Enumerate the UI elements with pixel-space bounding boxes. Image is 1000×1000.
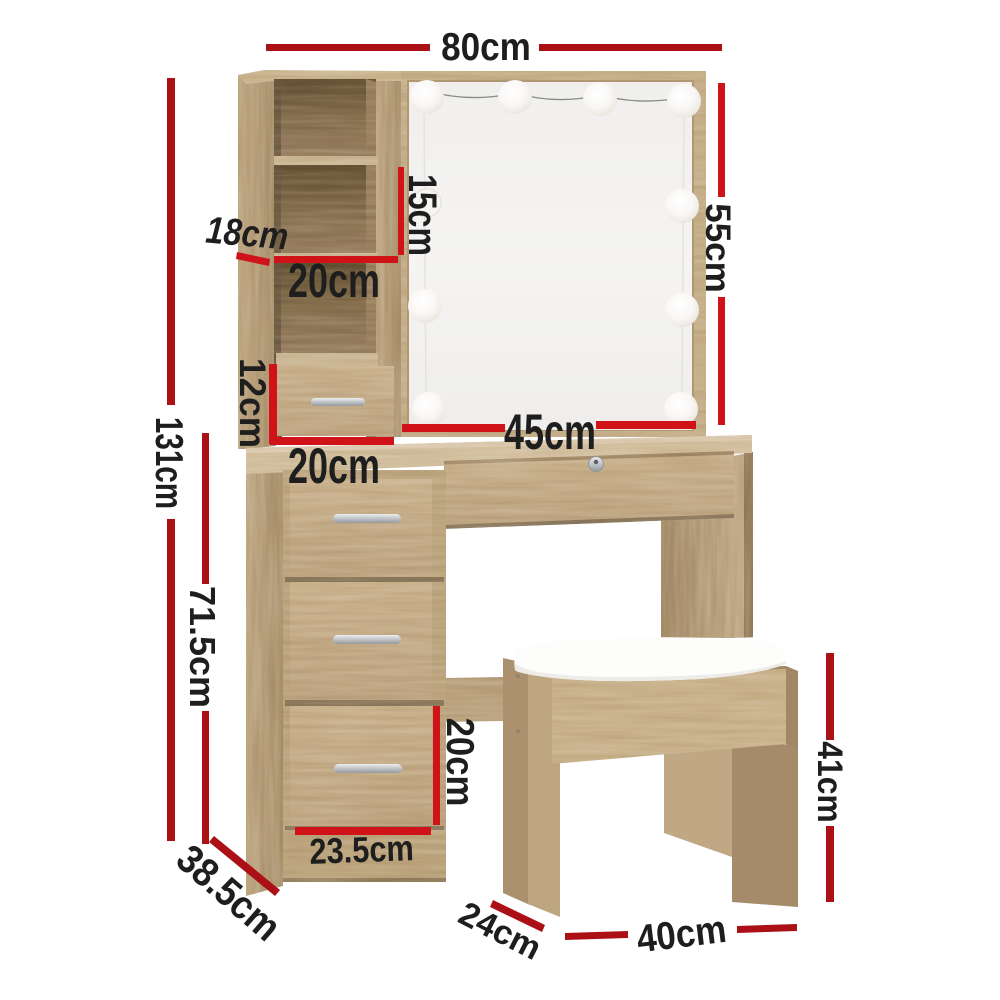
svg-text:12cm: 12cm: [232, 358, 274, 448]
svg-text:55cm: 55cm: [698, 203, 737, 293]
svg-text:131cm: 131cm: [147, 417, 190, 509]
svg-text:18cm: 18cm: [204, 209, 290, 258]
svg-text:20cm: 20cm: [439, 718, 482, 807]
svg-text:15cm: 15cm: [400, 174, 445, 256]
svg-text:20cm: 20cm: [288, 254, 380, 307]
svg-text:45cm: 45cm: [504, 405, 596, 460]
svg-text:23.5cm: 23.5cm: [309, 829, 415, 872]
svg-text:20cm: 20cm: [288, 439, 380, 494]
svg-text:71.5cm: 71.5cm: [182, 586, 223, 708]
svg-text:80cm: 80cm: [441, 24, 531, 68]
svg-text:41cm: 41cm: [810, 741, 849, 822]
